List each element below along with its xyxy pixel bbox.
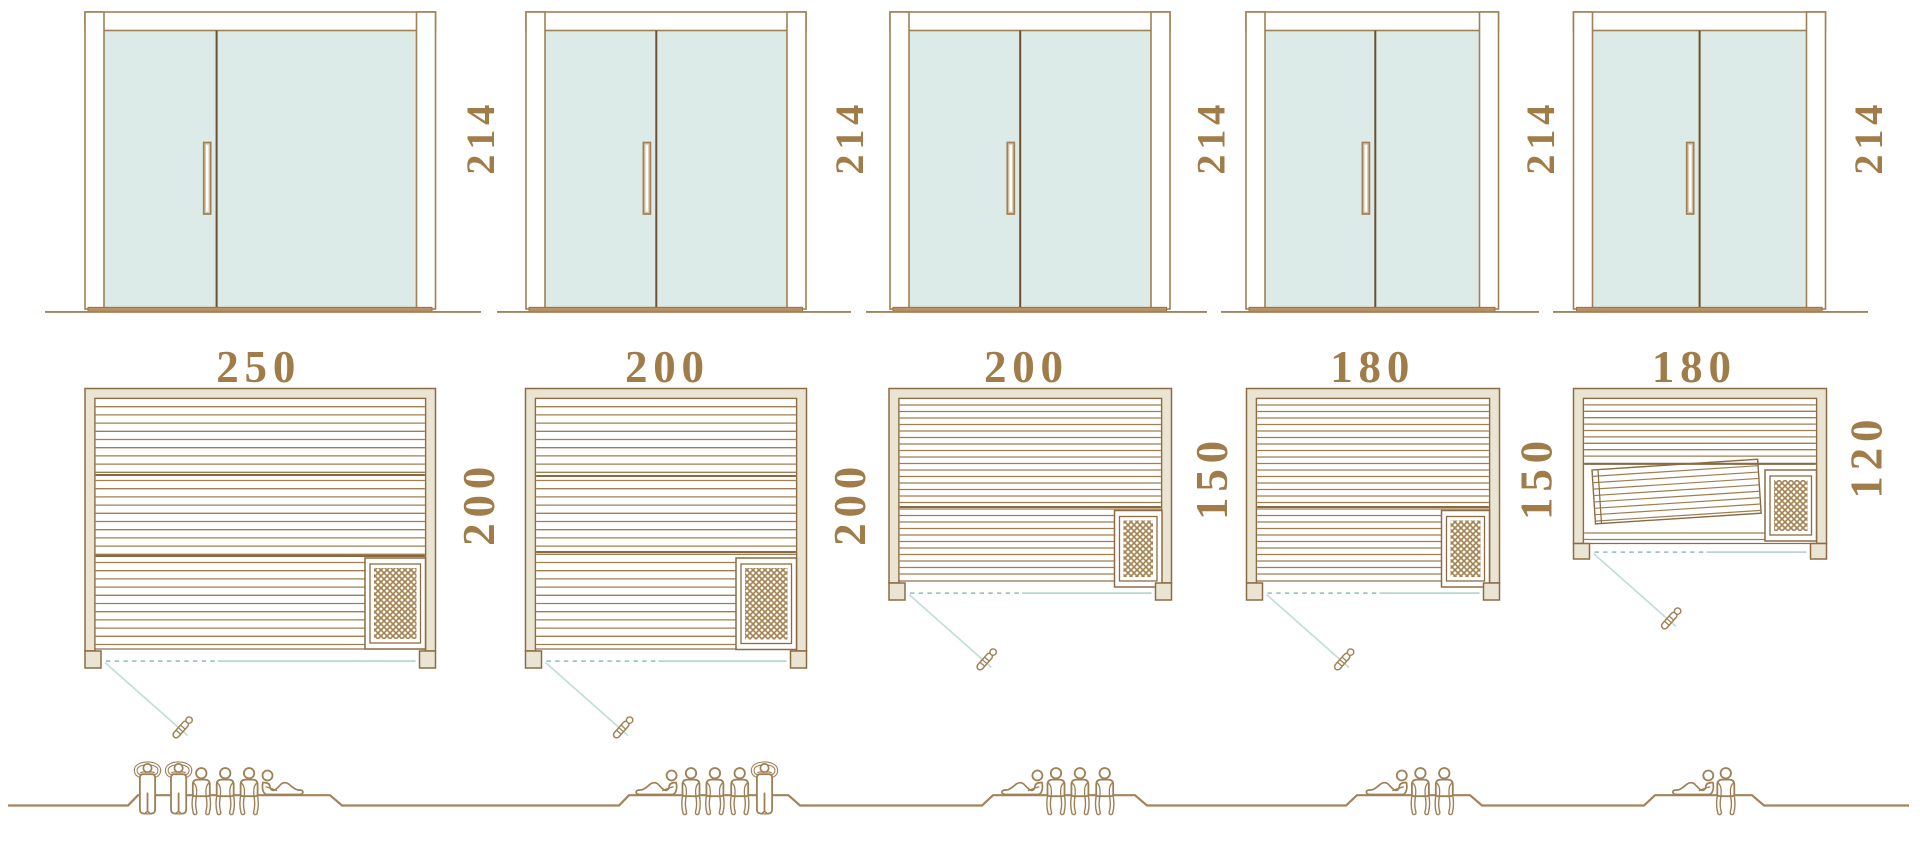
svg-text:214: 214 — [458, 100, 503, 175]
svg-text:214: 214 — [1188, 100, 1233, 175]
svg-text:214: 214 — [1518, 100, 1563, 175]
svg-text:214: 214 — [1846, 100, 1891, 175]
svg-text:150: 150 — [1187, 435, 1237, 520]
svg-text:200: 200 — [454, 461, 504, 546]
svg-text:214: 214 — [827, 100, 872, 175]
svg-text:200: 200 — [625, 342, 710, 392]
svg-text:200: 200 — [984, 342, 1069, 392]
svg-text:200: 200 — [825, 461, 875, 546]
svg-text:250: 250 — [216, 342, 301, 392]
svg-text:120: 120 — [1841, 414, 1891, 499]
svg-text:180: 180 — [1330, 342, 1415, 392]
svg-text:180: 180 — [1652, 342, 1737, 392]
svg-text:150: 150 — [1512, 435, 1562, 520]
